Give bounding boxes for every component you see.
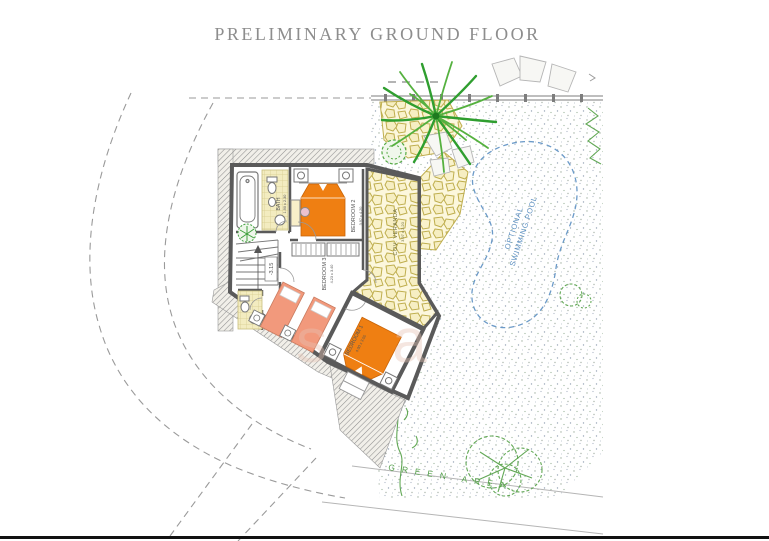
- nightstand-right: [339, 169, 353, 182]
- floor-plan-page: PRELIMINARY GROUND FLOOR: [0, 0, 769, 541]
- toilet-icon: [267, 177, 277, 194]
- nightstand-left: [294, 169, 308, 182]
- bush-icon: [382, 140, 406, 164]
- driveway-edge-2: [238, 458, 316, 541]
- footer-divider-line: [0, 536, 769, 539]
- bedroom3-dims: 4.23 x 3.40: [330, 265, 334, 284]
- corner-mark: [589, 74, 595, 81]
- level-marker: -3.15: [265, 257, 277, 281]
- driveway-edge-1: [170, 424, 252, 536]
- level-label: -3.15: [269, 263, 275, 276]
- wc-toilet-icon: [240, 296, 249, 312]
- bedroom2-label: BEDROOM 2: [351, 199, 357, 232]
- bedroom2-dims: 3.97 x 4.20: [359, 207, 363, 226]
- wardrobes: [292, 243, 359, 256]
- plot-line-lower: [322, 502, 603, 534]
- stair-plant-icon: [238, 224, 256, 242]
- bedroom3-label: BEDROOM 3: [322, 257, 328, 290]
- watermark: s a: [296, 307, 451, 376]
- bath-label: BATH: [276, 197, 282, 210]
- bidet-icon: [269, 198, 276, 207]
- floor-plan-drawing: OPTIONAL SWIMMING POOL: [0, 0, 769, 541]
- bathtub: [237, 172, 258, 228]
- bathroom: BATH 1.90 x 2.30: [237, 170, 288, 230]
- veranda-dims: 3.97 x 2.20: [400, 221, 405, 242]
- veranda-label: COV. VERANDA: [393, 208, 399, 255]
- bath-dims: 1.90 x 2.30: [283, 195, 287, 214]
